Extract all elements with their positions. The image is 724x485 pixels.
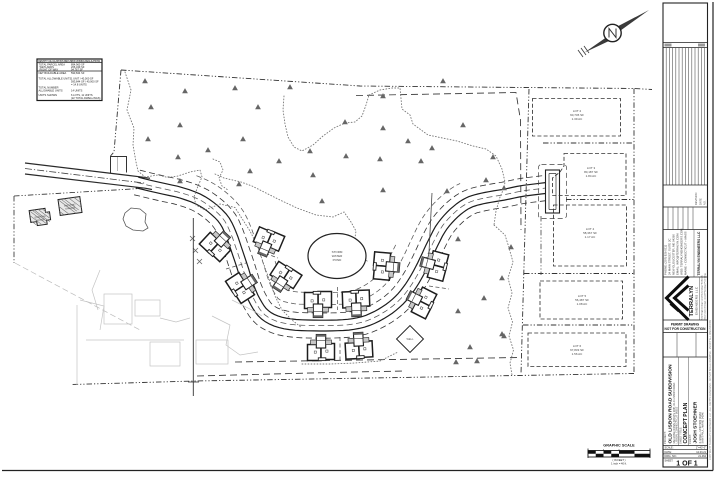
svg-text:DATE:: DATE: bbox=[665, 451, 672, 454]
svg-text:SHEET TITLE:: SHEET TITLE: bbox=[678, 427, 682, 444]
svg-text:1.08 AC: 1.08 AC bbox=[577, 302, 589, 306]
svg-text:1.17 AC: 1.17 AC bbox=[585, 235, 597, 239]
svg-text:UNITS SHOWN: UNITS SHOWN bbox=[39, 93, 58, 97]
svg-text:(22 TOTAL DWELLINGS): (22 TOTAL DWELLINGS) bbox=[71, 96, 100, 100]
svg-text:LISBON, CONNECTICUT 06351: LISBON, CONNECTICUT 06351 bbox=[675, 407, 678, 444]
svg-text:Civil Engineering | Land Surve: Civil Engineering | Land Surveying | Wet… bbox=[701, 274, 704, 319]
svg-text:PERMIT DRAWING: PERMIT DRAWING bbox=[671, 323, 700, 327]
svg-text:21-064: 21-064 bbox=[698, 455, 706, 458]
svg-text:Stormwater Design | Land Plann: Stormwater Design | Land Planning | Perm… bbox=[704, 273, 707, 320]
svg-text:CLIENT:: CLIENT: bbox=[688, 434, 692, 444]
svg-text:SHEET:: SHEET: bbox=[665, 459, 674, 462]
svg-text:TOTAL ALLOWABLE UNITS: TOTAL ALLOWABLE UNITS bbox=[39, 76, 72, 80]
svg-text:593,844 SF: 593,844 SF bbox=[71, 71, 85, 75]
svg-text:1.56 AC: 1.56 AC bbox=[572, 352, 584, 356]
svg-text:DENSITY CALCULATIONS PER LISBO: DENSITY CALCULATIONS PER LISBON ZONING R… bbox=[38, 59, 100, 63]
svg-text:JOSH STOEHNER: JOSH STOEHNER bbox=[693, 401, 699, 443]
svg-text:ENGINEERS LLC: ENGINEERS LLC bbox=[694, 287, 698, 315]
svg-text:WELL: WELL bbox=[406, 337, 414, 341]
svg-text:1.84 AC: 1.84 AC bbox=[586, 174, 598, 178]
svg-text:1"=40'-0": 1"=40'-0" bbox=[696, 447, 706, 450]
svg-text:ALLOWABLE UNITS: ALLOWABLE UNITS bbox=[39, 88, 63, 92]
svg-text:POND: POND bbox=[333, 258, 343, 262]
svg-text:NET BUILDABLE AREA: NET BUILDABLE AREA bbox=[39, 71, 67, 75]
svg-text:NO.: NO. bbox=[703, 200, 707, 205]
svg-text:NOT FOR CONSTRUCTION: NOT FOR CONSTRUCTION bbox=[665, 327, 707, 331]
svg-text:1 inch = 40 ft.: 1 inch = 40 ft. bbox=[611, 461, 627, 465]
svg-text:DATE: DATE bbox=[699, 198, 703, 205]
svg-text:DWG. NO.:: DWG. NO.: bbox=[665, 455, 678, 458]
svg-text:14 UNITS: 14 UNITS bbox=[71, 88, 83, 92]
svg-text:REVISION: REVISION bbox=[694, 192, 698, 205]
svg-text:TERRALYN ENGINEERS LLC: TERRALYN ENGINEERS LLC bbox=[697, 231, 701, 276]
svg-text:12.03.21: 12.03.21 bbox=[696, 451, 706, 454]
svg-text:1 OF 1: 1 OF 1 bbox=[676, 461, 698, 468]
svg-text:GRAPHIC SCALE: GRAPHIC SCALE bbox=[603, 444, 635, 448]
svg-text:MAINE + CONNECTICUT + MASS: MAINE + CONNECTICUT + MASS bbox=[684, 231, 688, 275]
svg-text:PROJECT:: PROJECT: bbox=[663, 431, 667, 444]
svg-text:COPYRIGHT TERRALYN ENGINEERS L: COPYRIGHT TERRALYN ENGINEERS LLC - ALL R… bbox=[709, 320, 712, 460]
svg-text:SAINT PAUL, MAINE 04240: SAINT PAUL, MAINE 04240 bbox=[702, 412, 705, 444]
svg-text:= 14.8 UNITS: = 14.8 UNITS bbox=[71, 82, 87, 86]
svg-text:SCALE:: SCALE: bbox=[665, 447, 674, 450]
svg-text:1.39 AC: 1.39 AC bbox=[572, 117, 584, 121]
